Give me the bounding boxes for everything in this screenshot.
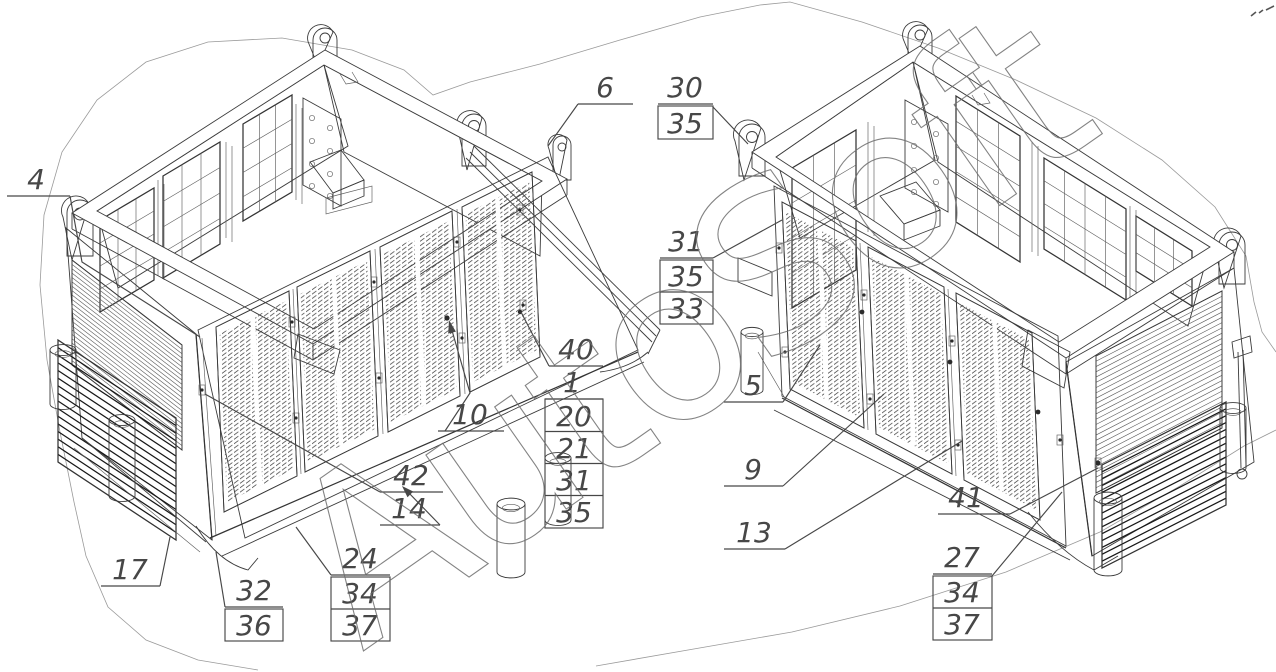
callout-17-label: 17	[112, 553, 148, 586]
callout-41-label: 41	[948, 481, 984, 514]
callout-13-label: 13	[736, 516, 772, 549]
callout-9-label: 9	[744, 453, 762, 486]
callout-32-label: 32	[236, 574, 272, 607]
callout-37b-label: 37	[944, 608, 980, 641]
callout-6-label: 6	[596, 71, 614, 104]
callout-27-label: 27	[944, 541, 980, 574]
callout-35-box-label: 35	[667, 107, 703, 140]
callout-30-label: 30	[667, 71, 703, 104]
callout-4-label: 4	[27, 163, 45, 196]
corner-specks	[1251, 6, 1274, 16]
callout-34b-label: 34	[944, 576, 980, 609]
callout-36-label: 36	[236, 609, 272, 642]
callout-32-36: 32 36	[216, 552, 283, 642]
callout-17: 17	[101, 537, 170, 586]
diagram-canvas: 4 6 30 35 31 35 33 40 1	[0, 0, 1276, 672]
parts-diagram-svg: 4 6 30 35 31 35 33 40 1	[0, 0, 1276, 672]
